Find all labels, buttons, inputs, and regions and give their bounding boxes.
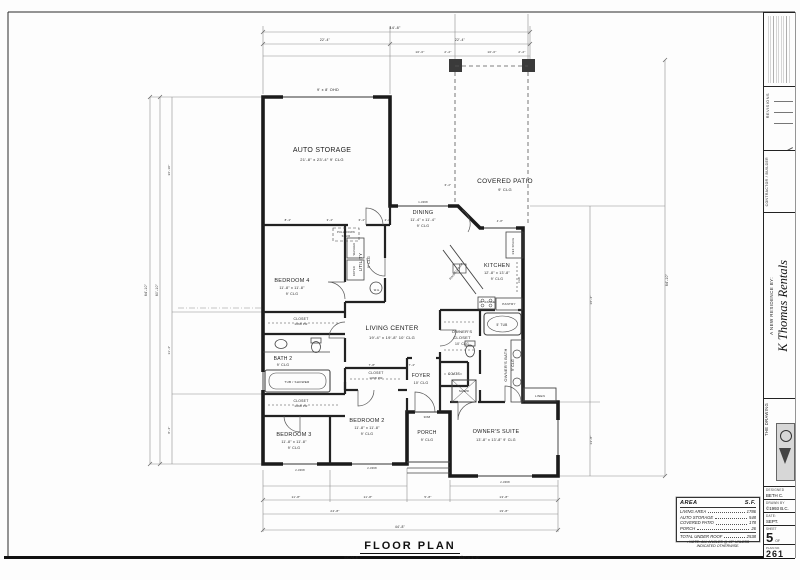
plan-label: 1068 PR — [369, 376, 383, 380]
sheet-of-label: OF — [775, 539, 780, 543]
plan-label: 11'-8" x 11'-8" — [279, 286, 305, 290]
plan-label: STAIR — [342, 234, 351, 238]
plan-label: CLOSET — [293, 317, 308, 321]
area-note: • NOTE: ALL ANGLES @ 45° UNLESS INDICATE… — [676, 540, 760, 549]
plan-label: 9' CLG — [288, 446, 301, 450]
plan-label: 7'-4" — [409, 363, 416, 367]
drawing-title-block: FLOOR PLAN SCALE: 1/4" = 1'-0" — [330, 536, 490, 560]
plan-label: 9' CLG — [286, 292, 299, 296]
plan-label: 9' CLG — [277, 363, 290, 367]
plan-label: 9' CLG — [421, 438, 434, 442]
plan-label: 11'-8" x 11'-8" — [354, 426, 380, 430]
drawing-sheet: AUTO STORAGE21'-8" x 23'-4" 9' CLG9' x 8… — [0, 0, 800, 580]
plan-label: UTILITY — [358, 253, 363, 272]
plan-label: KITCHEN — [484, 263, 510, 269]
contractor-label: CONTRACTOR / BUILDER — [765, 157, 769, 206]
plan-label: 2'-2" — [518, 50, 525, 54]
plan-label: CLOSET — [368, 371, 383, 375]
plan-label: 2'-2" — [444, 50, 451, 54]
plan-label: 21'-8" x 23'-4" 9' CLG — [300, 157, 344, 162]
plan-label: OWNER'S — [452, 329, 473, 334]
plan-label: 36'-10" — [167, 164, 171, 175]
plan-label: 10' CLG — [414, 381, 429, 385]
plan-label: 64'-10" — [144, 283, 148, 296]
scale-value: 1/4" = 1'-0" — [459, 555, 480, 560]
patio-column — [522, 59, 535, 72]
date-label: DATE: — [766, 514, 793, 518]
plan-no-value: 261 — [766, 549, 784, 559]
scale-label: SCALE: — [344, 555, 360, 560]
contractor-section: CONTRACTOR / BUILDER — [764, 151, 795, 213]
plan-label: 60'-10" — [155, 283, 159, 296]
plan-label: 10' CLG — [455, 342, 469, 346]
plan-label: 5' TUB — [496, 323, 507, 327]
designed-label: DESIGNED — [766, 488, 793, 492]
plan-label: LIVING CENTER — [365, 325, 418, 332]
plan-label: PULL-DOWN — [337, 230, 355, 234]
patio-column — [449, 59, 462, 72]
revisions-section: REVISIONS — [764, 87, 795, 151]
door-arcs — [284, 208, 521, 432]
sheet-field: SHEET 5 OF — [764, 526, 795, 545]
designed-value: BETH C. — [766, 493, 793, 498]
plan-label: 10'-0" — [487, 50, 496, 54]
plan-label: 9' x 8' OHD — [317, 88, 339, 92]
drawn-by-value: ©1993 B.C. — [766, 506, 793, 511]
plan-label: 12'-8" x 13'-8" — [484, 271, 510, 275]
plan-label: 9' CLG — [491, 277, 504, 281]
firm-label: THE DRAWING — [765, 403, 770, 436]
plan-label: 2-3068 — [367, 466, 377, 470]
plan-label: 44'-8" — [389, 26, 401, 30]
plan-label: 1-3068 — [418, 200, 428, 204]
revision-rows — [774, 91, 793, 136]
plan-label: BEDROOM 3 — [276, 432, 311, 438]
date-field: DATE: SEPT. — [764, 513, 795, 526]
plan-label: CLOSET — [453, 335, 471, 340]
plan-label: BATH 2 — [274, 356, 293, 362]
residence-section: A NEW RESIDENCE BY: K Thomas Rentals — [764, 213, 795, 399]
plan-label: WASHER — [352, 243, 356, 256]
sheet-border — [8, 12, 795, 558]
plan-label: 11'-8" x 11'-8" — [281, 440, 307, 444]
area-table-rows: LIVING AREA1786AUTO STORAGE548COVERED PA… — [680, 509, 756, 539]
plan-label: LINEN — [535, 394, 545, 398]
plan-label: 3068 — [424, 415, 431, 419]
plan-label: COATS — [448, 372, 460, 376]
revisions-label: REVISIONS — [765, 93, 770, 118]
designed-field: DESIGNED BETH C. — [764, 487, 795, 500]
plan-label: 64'-10" — [665, 273, 669, 286]
sheet-number: 5 — [766, 531, 773, 544]
plan-label: OWNER'S SUITE — [473, 429, 520, 435]
plan-label: 13'-8" — [499, 495, 508, 499]
plan-label: 11'-8" — [364, 495, 373, 499]
plan-label: 5'-8" — [424, 495, 431, 499]
plan-label: CLOSET — [293, 399, 308, 403]
plan-label: 22'-4" — [455, 38, 466, 42]
firm-section: THE DRAWING — [764, 399, 795, 487]
plan-label: TUB / SHOWER — [284, 380, 310, 384]
plan-label: OWNER'S BATH — [503, 348, 508, 381]
plan-label: 44'-8" — [395, 525, 406, 529]
plan-label: 9' CLG — [361, 432, 374, 436]
area-table-title: AREA — [680, 500, 697, 506]
covered-patio-outline — [449, 59, 535, 226]
copyright-section — [764, 13, 795, 87]
area-table: AREA S.F. LIVING AREA1786AUTO STORAGE548… — [676, 497, 760, 542]
plan-label: REF SPACE — [511, 238, 515, 255]
plan-label: 22'-4" — [320, 38, 331, 42]
plan-label: 9' CLG — [367, 256, 371, 268]
plan-no-field: PLAN NO. 261 — [764, 545, 795, 560]
plan-label: PANTRY — [502, 302, 515, 306]
client-name: K Thomas Rentals — [776, 260, 791, 352]
plan-label: 8'-4" — [285, 218, 292, 222]
plan-label: 2-3068 — [295, 468, 305, 472]
plan-label: 1068 PR — [294, 404, 308, 408]
plan-label: 4'-8" — [497, 219, 503, 223]
area-row: PORCH26 — [680, 526, 756, 532]
area-table-unit: S.F. — [745, 500, 756, 506]
copyright-fine-print — [768, 16, 791, 83]
plan-label: W.H. — [374, 288, 381, 292]
plan-label: 13'-8" x 13'-8" 9' CLG — [476, 438, 516, 442]
area-row: TOTAL UNDER ROOF2538 — [680, 532, 756, 539]
plan-label: 8'-4" — [167, 426, 171, 433]
plan-label: 7'-8" — [369, 363, 376, 367]
plan-label: DRYER — [352, 266, 356, 276]
drawn-by-field: DRAWN BY ©1993 B.C. — [764, 500, 795, 513]
plan-label: BEDROOM 4 — [274, 278, 309, 284]
plan-label: DINING — [413, 210, 434, 216]
plan-label: 6'-2" — [445, 183, 452, 187]
plan-label: 30" RANGE — [479, 300, 495, 304]
sheet-label: SHEET — [766, 527, 777, 531]
plan-label: 13'-8" — [589, 435, 593, 444]
plan-label: 2-3068 — [500, 480, 510, 484]
drawn-by-label: DRAWN BY — [766, 501, 793, 505]
plan-label: CAB — [517, 277, 521, 283]
plan-label: 11'-8" — [292, 495, 301, 499]
plan-label: FOYER — [412, 373, 431, 379]
plan-label: 2'-8" — [385, 218, 392, 222]
plan-label: COVERED PATIO — [477, 178, 533, 185]
residence-by-label: A NEW RESIDENCE BY: — [769, 277, 774, 335]
plan-label: 19'-8" — [499, 509, 508, 513]
plan-label: 10'-0" — [415, 50, 424, 54]
plan-label: 1068 PR — [294, 322, 308, 326]
drawing-title: FLOOR PLAN — [360, 540, 460, 554]
floor-plan-drawing: AUTO STORAGE21'-8" x 23'-4" 9' CLG9' x 8… — [0, 0, 800, 580]
plan-label: BEDROOM 2 — [349, 418, 384, 424]
plan-label: SHWR — [459, 389, 470, 393]
plan-label: AUTO STORAGE — [293, 147, 351, 154]
plan-label: 9' CLG — [511, 359, 515, 371]
plan-label: 11'-4" x 11'-4" — [410, 218, 436, 222]
plan-label: RAISED BAR — [448, 262, 464, 281]
firm-logo — [776, 423, 795, 481]
plan-label: 16'-4" — [589, 295, 593, 304]
plan-label: PORCH — [417, 430, 436, 436]
plan-label: 24'-8" — [330, 509, 339, 513]
plan-label: 9' CLG — [498, 187, 512, 192]
title-block: REVISIONS CONTRACTOR / BUILDER A NEW RES… — [763, 12, 795, 558]
plan-label: 19'-4" x 19'-8" 10' CLG — [369, 335, 415, 340]
plan-label: 3'-4" — [327, 218, 334, 222]
plan-label: 11'-4" — [167, 346, 171, 355]
plan-label: 6'-4" — [359, 218, 366, 222]
plan-label: 9' CLG — [417, 224, 430, 228]
date-value: SEPT. — [766, 519, 793, 524]
